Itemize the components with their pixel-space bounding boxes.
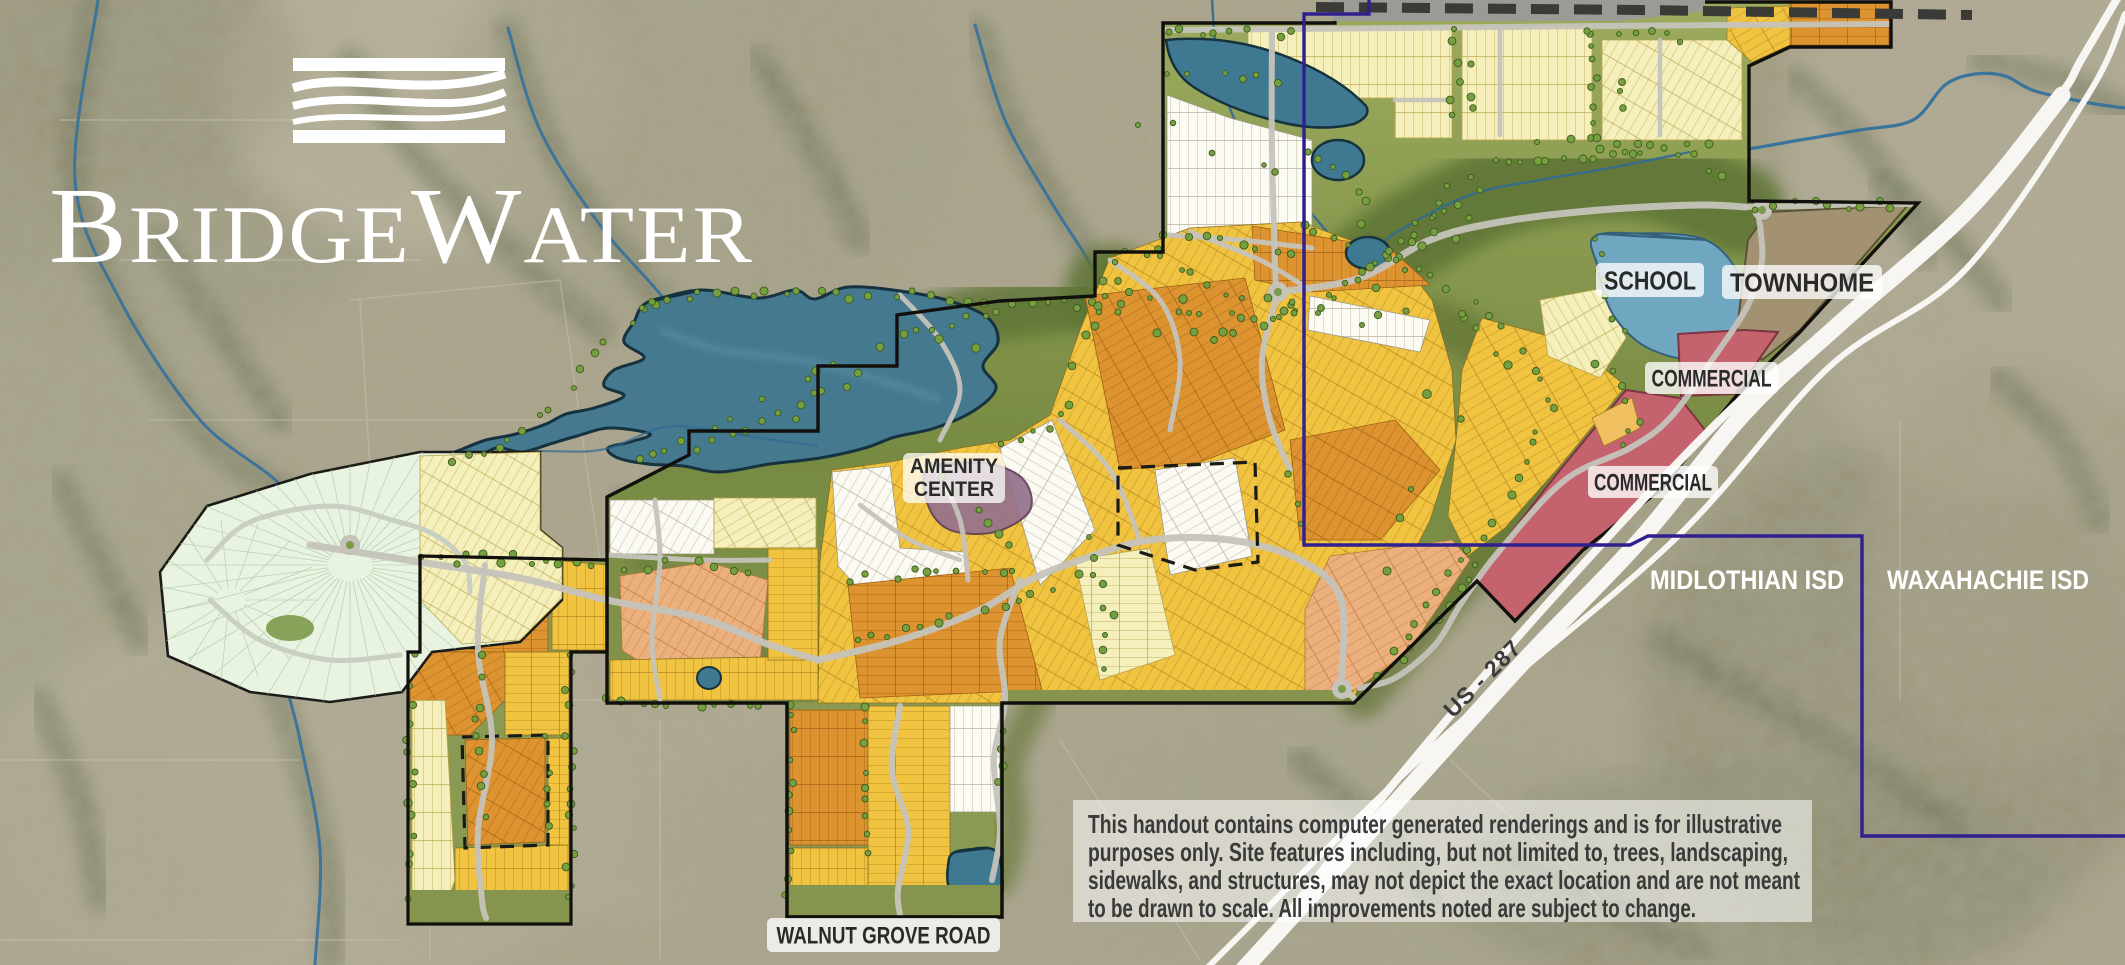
svg-text:purposes only. Site features i: purposes only. Site features including, …: [1088, 837, 1788, 867]
svg-text:COMMERCIAL: COMMERCIAL: [1594, 470, 1712, 497]
svg-text:sidewalks, and structures, may: sidewalks, and structures, may not depic…: [1088, 865, 1800, 895]
svg-text:This handout contains computer: This handout contains computer generated…: [1088, 809, 1782, 839]
svg-text:CENTER: CENTER: [914, 478, 994, 501]
svg-text:MIDLOTHIAN ISD: MIDLOTHIAN ISD: [1650, 565, 1844, 595]
svg-text:AMENITY: AMENITY: [910, 455, 998, 478]
svg-text:SCHOOL: SCHOOL: [1604, 265, 1696, 295]
svg-text:WALNUT GROVE ROAD: WALNUT GROVE ROAD: [777, 923, 991, 950]
svg-text:WAXAHACHIE ISD: WAXAHACHIE ISD: [1887, 565, 2089, 595]
svg-text:to be drawn to scale. All impr: to be drawn to scale. All improvements n…: [1088, 893, 1696, 923]
svg-text:COMMERCIAL: COMMERCIAL: [1652, 366, 1772, 393]
svg-text:TOWNHOME: TOWNHOME: [1730, 267, 1874, 297]
